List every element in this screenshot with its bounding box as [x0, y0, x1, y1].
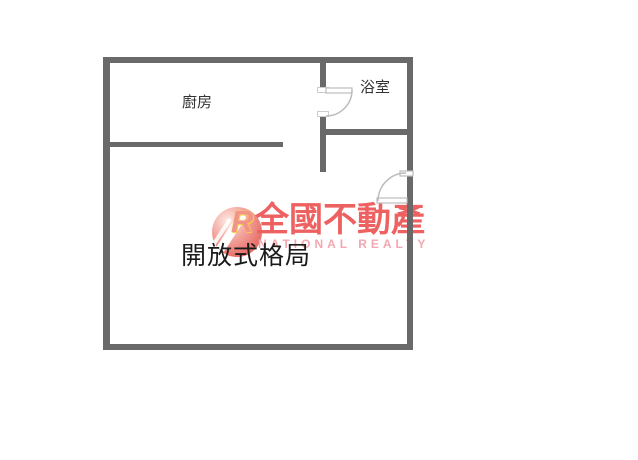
entrance-door-icon	[372, 168, 414, 210]
bathroom-door-arc	[326, 90, 352, 116]
bathroom-door-icon	[318, 84, 362, 128]
floor-plan-image: R 全國不動產 NATIONAL REALTY 廚房 浴室	[0, 0, 638, 460]
bathroom-door-panel	[326, 88, 352, 93]
open-layout-label: 開放式格局	[181, 236, 311, 272]
floor-plan: 廚房 浴室 開放式格局	[0, 0, 638, 460]
entrance-door-arc	[378, 173, 406, 201]
wall-left	[103, 57, 110, 350]
wall-top	[103, 57, 413, 63]
entrance-door-panel	[377, 198, 407, 203]
kitchen-label: 廚房	[182, 94, 212, 111]
wall-bottom	[103, 344, 413, 350]
bathroom-label: 浴室	[360, 79, 390, 96]
wall-kitchen-bottom	[103, 142, 283, 147]
wall-bathroom-bottom	[320, 129, 413, 135]
